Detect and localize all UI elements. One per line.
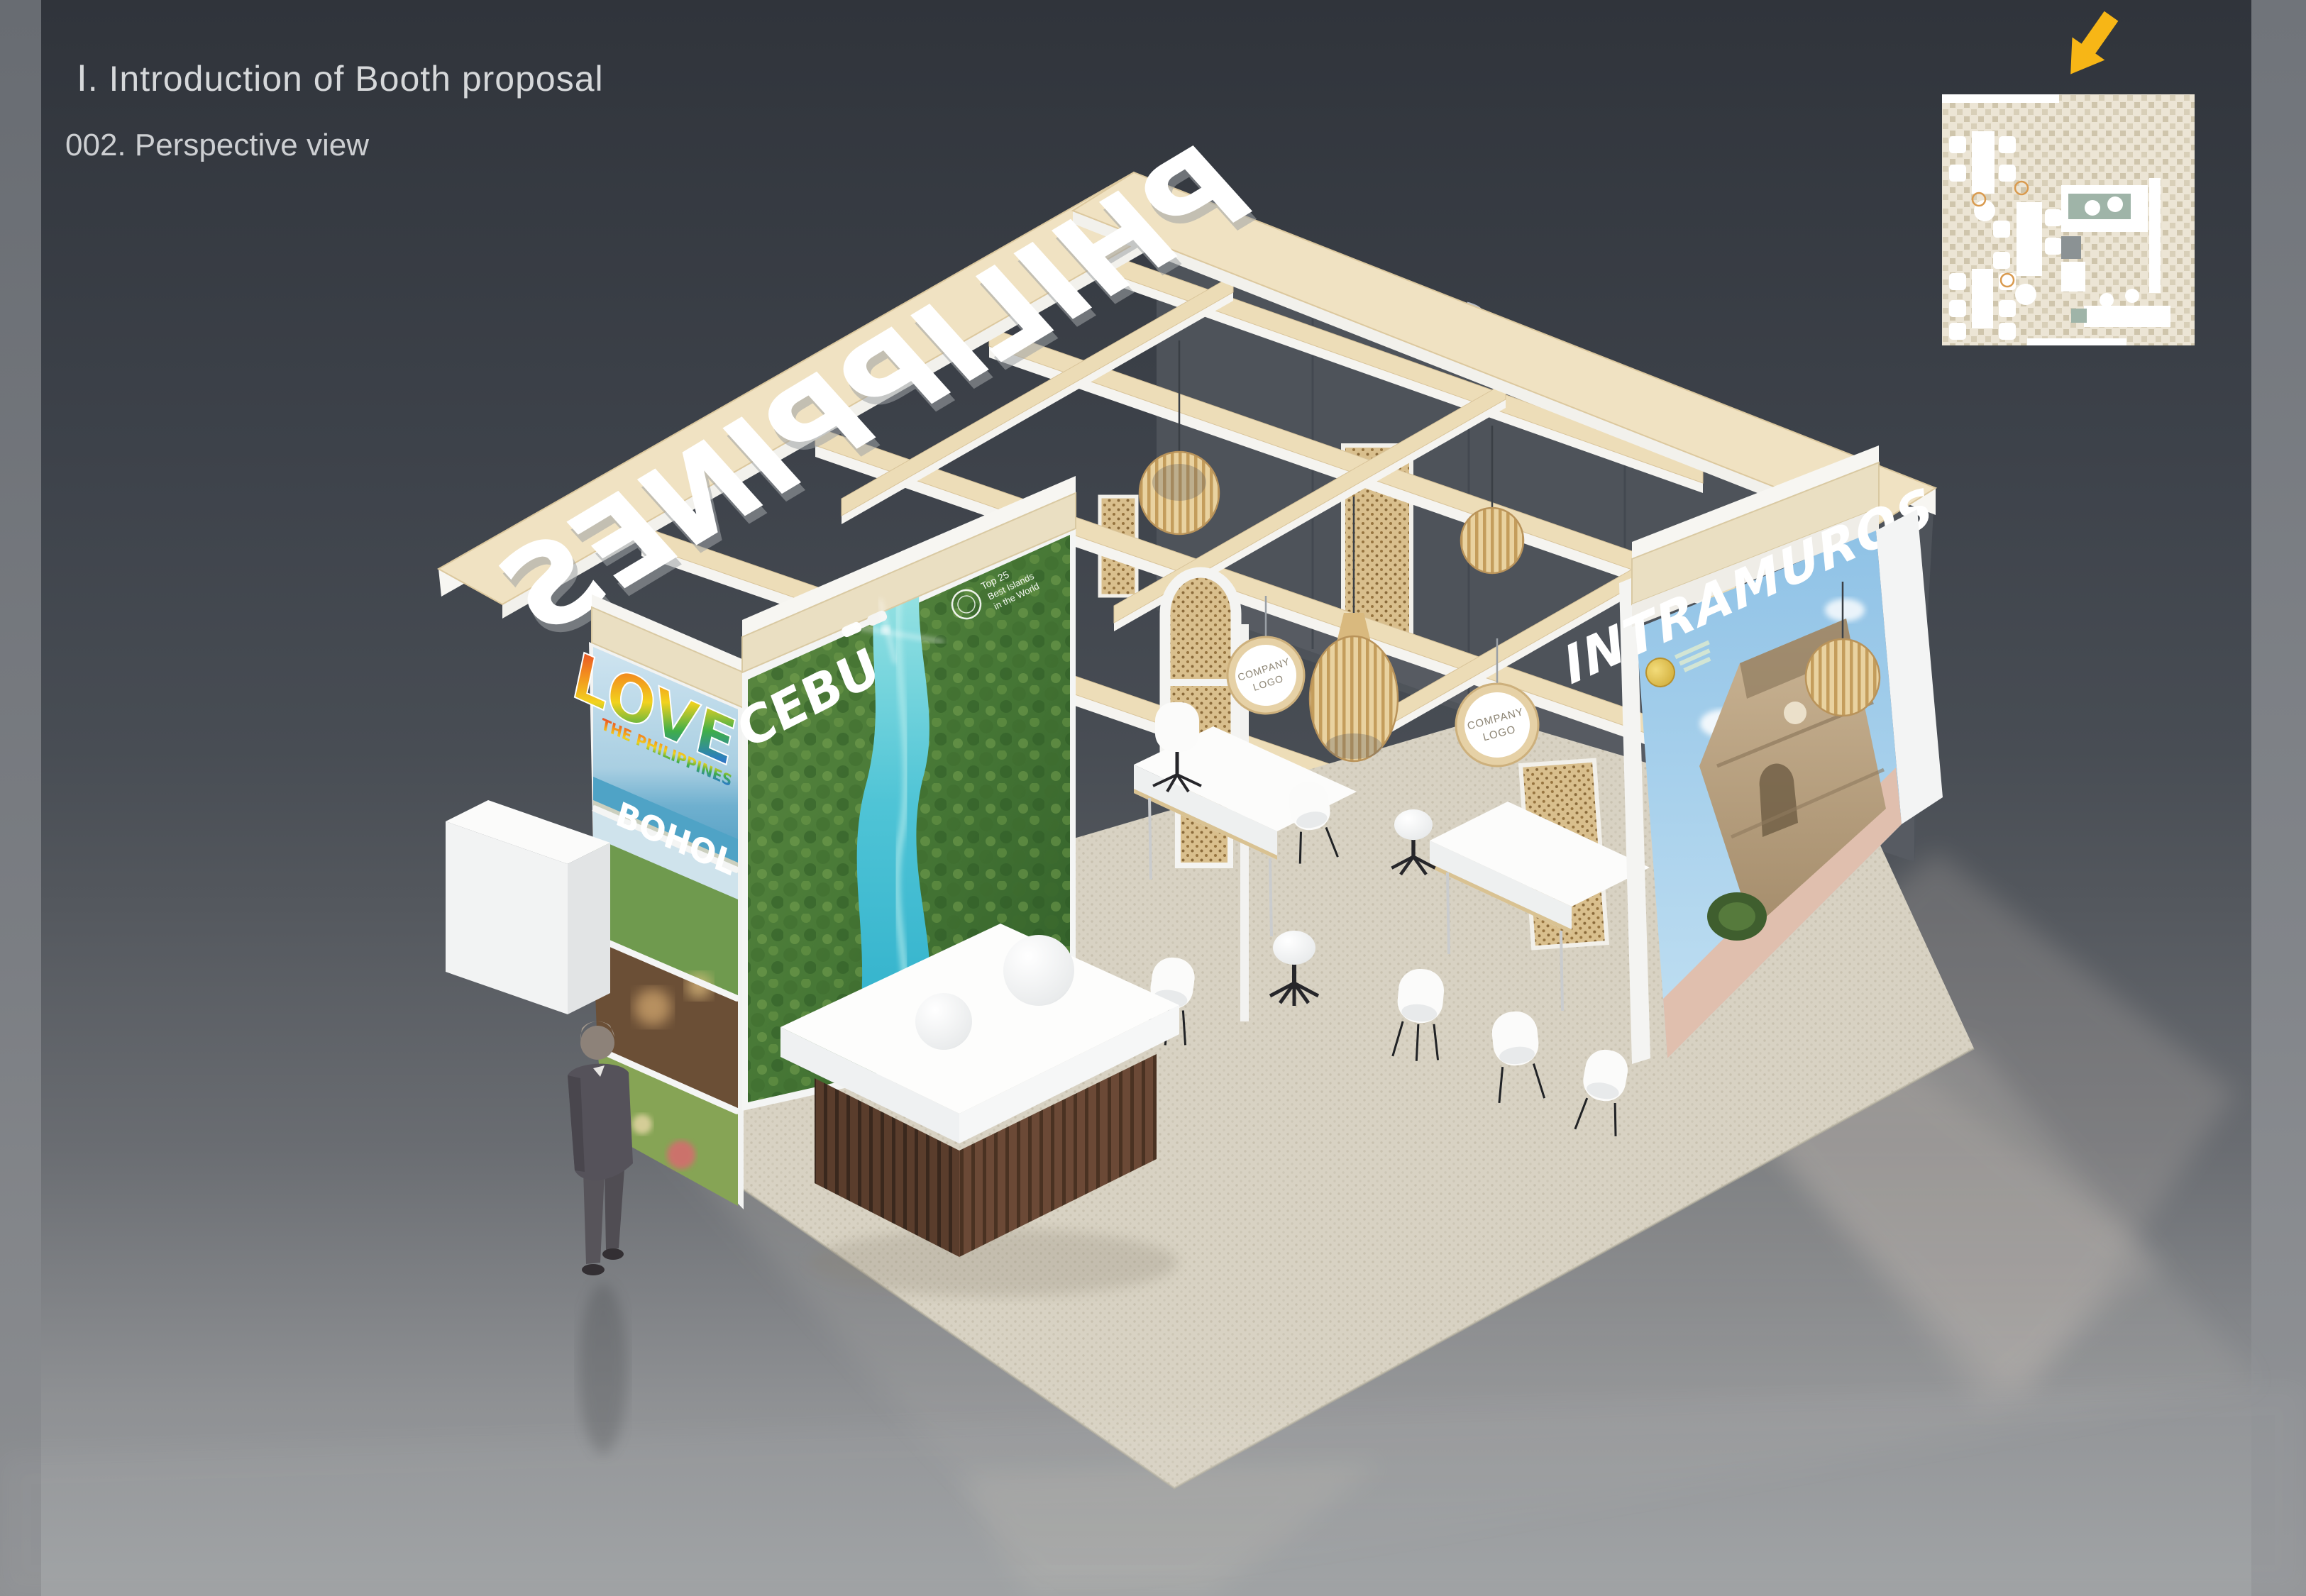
decor-sphere <box>915 993 972 1050</box>
floor-plan-thumbnail <box>1942 94 2195 345</box>
white-plinth <box>446 800 610 1014</box>
pointer-arrow-icon <box>2055 4 2133 86</box>
slide: PHILIPPINES <box>0 0 2306 1596</box>
slide-title: Ⅰ. Introduction of Booth proposal <box>77 58 604 99</box>
visitor-figure <box>568 1021 633 1454</box>
slide-subtitle: 002. Perspective view <box>65 128 369 163</box>
decor-sphere <box>1003 935 1074 1006</box>
